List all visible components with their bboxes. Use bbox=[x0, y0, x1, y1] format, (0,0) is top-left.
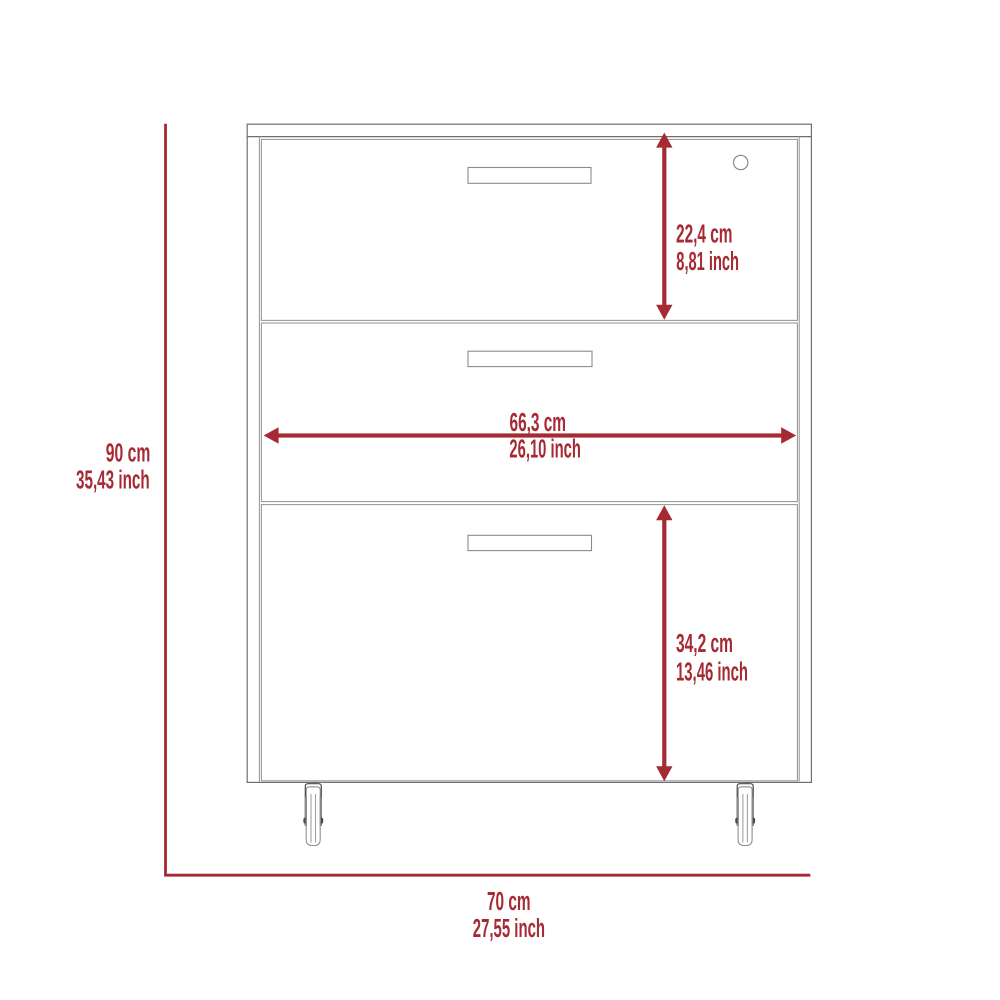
svg-text:66,3 cm: 66,3 cm bbox=[510, 409, 567, 437]
svg-text:34,2 cm: 34,2 cm bbox=[676, 630, 733, 658]
svg-text:35,43 inch: 35,43 inch bbox=[76, 466, 150, 494]
svg-text:22,4 cm: 22,4 cm bbox=[676, 221, 733, 249]
svg-text:26,10 inch: 26,10 inch bbox=[509, 436, 581, 464]
svg-text:70 cm: 70 cm bbox=[487, 888, 531, 916]
svg-text:13,46 inch: 13,46 inch bbox=[676, 659, 748, 687]
svg-text:90 cm: 90 cm bbox=[106, 439, 151, 467]
svg-text:8,81 inch: 8,81 inch bbox=[676, 248, 739, 276]
svg-text:27,55 inch: 27,55 inch bbox=[473, 915, 545, 943]
